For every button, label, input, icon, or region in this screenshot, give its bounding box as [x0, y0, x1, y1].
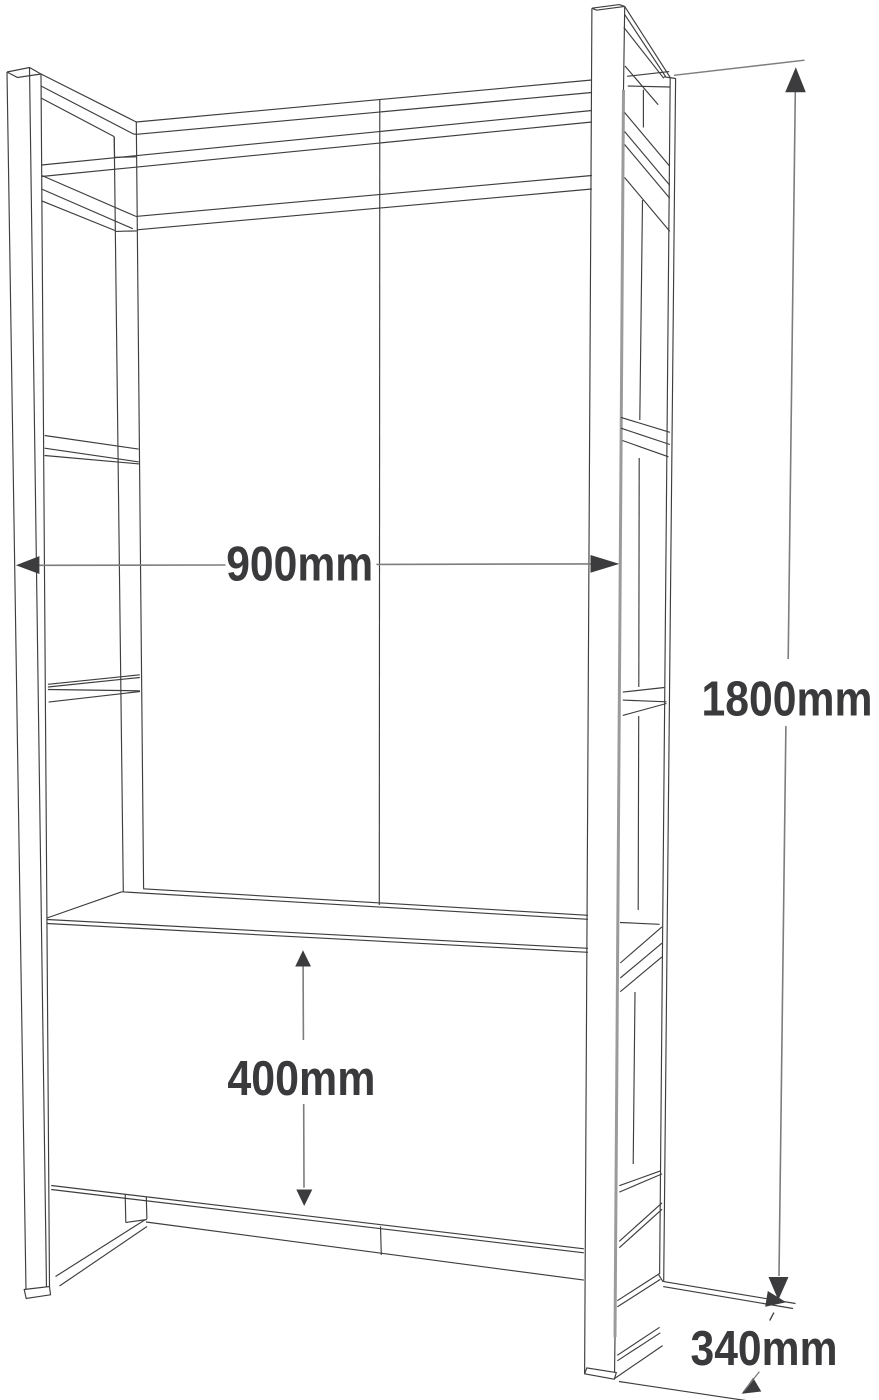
svg-text:340mm: 340mm	[691, 1322, 838, 1376]
svg-text:400mm: 400mm	[227, 1052, 375, 1106]
svg-text:900mm: 900mm	[226, 537, 373, 591]
svg-text:1800mm: 1800mm	[702, 673, 873, 727]
